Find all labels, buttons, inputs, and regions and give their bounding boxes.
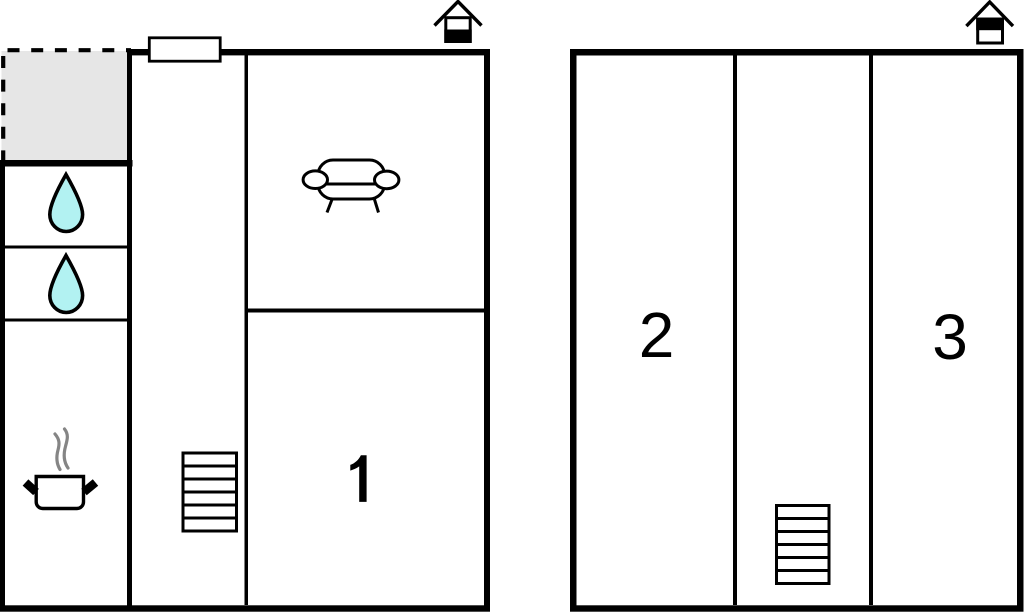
svg-text:2: 2 <box>639 299 675 371</box>
svg-text:3: 3 <box>932 301 968 373</box>
